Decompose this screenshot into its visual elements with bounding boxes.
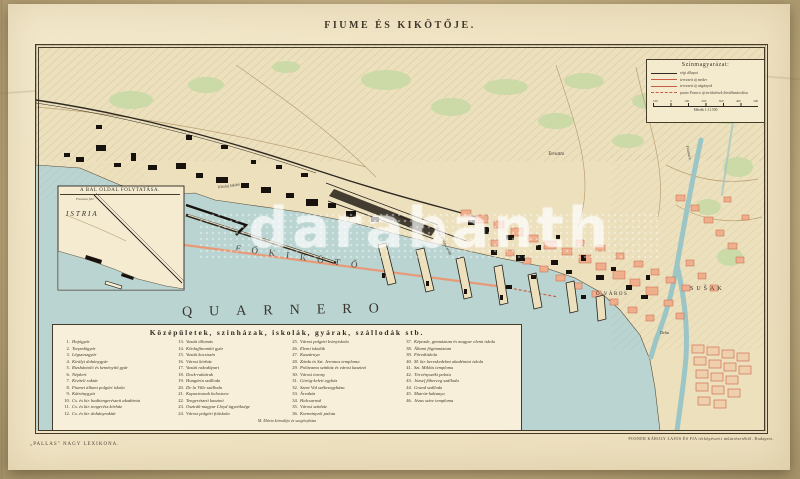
color-key-rows: régi állapot tervezett új meder tervezet… <box>651 70 760 96</box>
printer-credit: POSNER KÁROLY LAJOS ÉS FIA térképészeti … <box>628 436 774 441</box>
scale-tick: 400 <box>736 99 741 103</box>
scale-tick: 200 <box>702 99 707 103</box>
building-index-columns: 1.Hajógyár2.Torpedógyár3.Légszeszgyár4.K… <box>59 339 515 417</box>
entry-label: Városi polgári fiúiskola <box>186 411 230 418</box>
entry-number: 46. <box>401 398 414 405</box>
line-sample-swatch <box>651 92 677 93</box>
building-index-panel: Középületek, szinházak, iskolák, gyárak,… <box>52 324 522 431</box>
paper-fold <box>0 0 3 479</box>
photo-backdrop: FIUME ÉS KIKÖTŐJE. <box>0 0 800 479</box>
index-column-2: 13.Vasúti állomás14.Kőolajfinomító gyár1… <box>173 339 287 417</box>
index-column-1: 1.Hajógyár2.Torpedógyár3.Légszeszgyár4.K… <box>59 339 173 417</box>
inset-title: A BAL OLDAL FOLYTATÁSA. <box>60 188 180 195</box>
entry-number: 36. <box>287 411 300 418</box>
inset-note: Fianona felé <box>76 197 94 201</box>
index-entry: 24.Városi polgári fiúiskola <box>173 411 283 418</box>
publisher-credit: „PALLAS" NAGY LEXIKONA. <box>30 442 120 447</box>
line-sample-swatch <box>651 73 677 74</box>
scale-bar-group: 1000100200300400500 Mérték 1:11.500 <box>651 99 760 112</box>
color-key-label: régi állapot <box>680 71 698 75</box>
scale-tick: 100 <box>684 99 689 103</box>
region-label-istria: ISTRIA <box>66 210 99 218</box>
entry-label: Cs. és kir. dohányraktár <box>72 411 116 418</box>
index-column-3: 25.Városi polgári leányiskola26.Elemi is… <box>287 339 401 417</box>
color-key-label: tervezett új vágányok <box>680 84 712 88</box>
scale-tick: 0 <box>670 99 672 103</box>
delta-label: Delta <box>660 330 669 335</box>
index-entry: 12.Cs. és kir. dohányraktár <box>59 411 169 418</box>
scale-tick: 500 <box>753 99 758 103</box>
entry-number: 24. <box>173 411 186 418</box>
scale-tick: 100 <box>653 99 658 103</box>
scale-bar <box>653 103 758 107</box>
color-key-box: Színmagyarázat: régi állapot tervezett ú… <box>646 59 765 123</box>
index-footnote: M. Mária kórodája és szegényháza <box>59 418 515 423</box>
index-entry: 46.Jézus szíve temploma <box>401 398 511 405</box>
color-key-label: tervezett új meder <box>680 78 707 82</box>
index-column-4: 37.Képezde, gimnázium és magyar elemi is… <box>401 339 515 417</box>
scale-caption: Mérték 1:11.500 <box>651 108 760 112</box>
scale-tick: 300 <box>719 99 724 103</box>
map-title: FIUME ÉS KIKÖTŐJE. <box>0 20 800 31</box>
color-key-row: punto Franco új területének körülhatárol… <box>651 90 760 97</box>
entry-label: Jézus szíve temploma <box>414 398 453 405</box>
line-sample-swatch <box>651 79 677 80</box>
building-index-title: Középületek, szinházak, iskolák, gyárak,… <box>59 328 515 337</box>
susak-label: SUŠAK <box>690 286 725 292</box>
tersatto-label: Tersatto <box>548 152 564 157</box>
color-key-label: punto Franco új területének körülhatárol… <box>680 91 748 95</box>
index-entry: 36.Kormányzói palota <box>287 411 397 418</box>
entry-label: Kormányzói palota <box>300 411 335 418</box>
color-key-title: Színmagyarázat: <box>651 62 760 68</box>
old-town-label: Ó VÁROS <box>596 292 628 297</box>
line-sample-swatch <box>651 86 677 87</box>
entry-number: 12. <box>59 411 72 418</box>
